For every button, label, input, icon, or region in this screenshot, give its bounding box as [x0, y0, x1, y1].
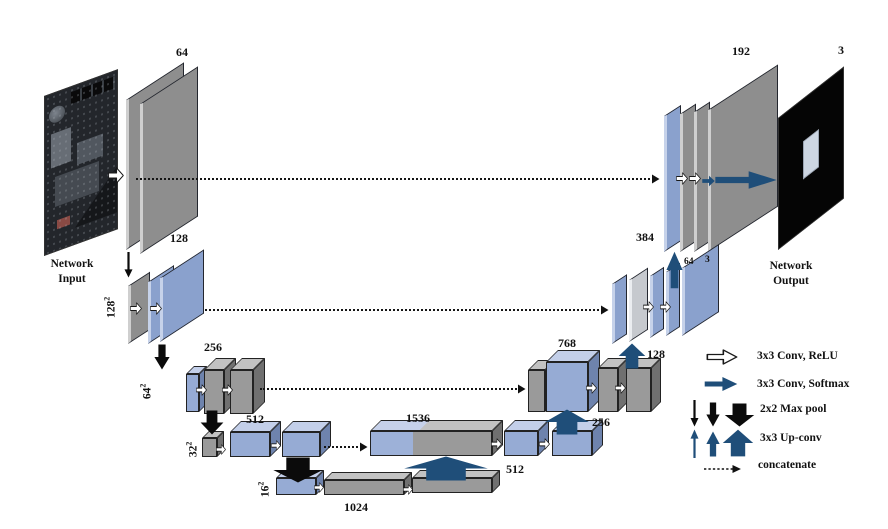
- legend-maxpool-thin-icon: [690, 400, 699, 427]
- channels-label-enc2: 128: [170, 231, 188, 246]
- maxpool-arrow-icon: [124, 252, 133, 278]
- concat-box-dec3: [546, 362, 588, 412]
- conv-box-enc4-a: [230, 432, 270, 457]
- concat-box-dec4: [370, 431, 492, 456]
- conv-box-enc4-b: [282, 432, 320, 457]
- conv-box-enc3-b: [230, 370, 253, 414]
- network-input-caption: Network Input: [32, 257, 112, 287]
- conv-box-enc4-in: [202, 438, 217, 457]
- channels-label-dec3-up: 128: [647, 347, 665, 362]
- size-label-16sq: 162: [257, 471, 272, 507]
- skip-arrowhead-icon: [601, 305, 609, 315]
- legend-upconv-thin-icon: [690, 429, 699, 458]
- skip-box-dec3: [528, 370, 545, 412]
- upconv-arrow-icon: [618, 343, 646, 369]
- conv-relu-arrow-icon: [130, 302, 142, 315]
- upconv-arrow-icon: [402, 456, 490, 481]
- size-label-128sq: 1282: [103, 289, 118, 325]
- conv-box-dec4-a: [504, 431, 538, 456]
- channels-label-dec3-concat: 768: [558, 336, 576, 351]
- conv-relu-arrow-icon: [491, 438, 502, 450]
- channels-label-output: 3: [838, 43, 844, 58]
- channels-label-dec4-conv: 512: [506, 462, 524, 477]
- channels-label-dec1: 192: [732, 44, 750, 59]
- conv-relu-arrow-icon: [150, 302, 162, 315]
- conv-relu-arrow-icon: [403, 484, 413, 495]
- conv-relu-arrow-icon: [108, 167, 124, 184]
- legend-label-concatenate: concatenate: [758, 459, 816, 471]
- skip-connection-line-l2: [205, 309, 603, 311]
- skip-connection-line-l3: [260, 388, 520, 390]
- feature-map-sheet-dec2-a: [612, 274, 627, 344]
- maxpool-arrow-icon: [154, 344, 170, 370]
- legend-maxpool-medium-icon: [706, 402, 720, 427]
- legend-label-conv-softmax: 3x3 Conv, Softmax: [757, 378, 849, 390]
- feature-map-sheet-enc2-c: [160, 249, 204, 342]
- channels-label-dec2-concat: 384: [636, 230, 654, 245]
- conv-relu-arrow-icon: [314, 482, 324, 493]
- size-label-32sq: 322: [185, 431, 200, 467]
- conv-relu-arrow-icon: [643, 301, 654, 313]
- channels-label-enc1: 64: [176, 45, 188, 60]
- legend-label-conv-relu: 3x3 Conv, ReLU: [757, 350, 838, 362]
- channels-label-dec4-concat: 1536: [406, 411, 430, 426]
- conv-relu-arrow-icon: [539, 438, 550, 450]
- maxpool-arrow-icon: [272, 457, 324, 483]
- conv-box-dec3-b: [626, 368, 651, 412]
- upconv-arrow-icon: [666, 251, 683, 289]
- size-label-64sq: 642: [139, 373, 154, 409]
- conv-box-enc3-a: [204, 370, 224, 414]
- conv-relu-arrow-icon: [689, 172, 701, 185]
- skip-connection-line-l4: [324, 446, 362, 448]
- upconv-arrow-icon: [544, 409, 590, 435]
- unet-architecture-diagram: 64 128 256 512 1024 1536 512 256 768 128…: [0, 0, 888, 529]
- conv-relu-arrow-icon: [222, 384, 233, 396]
- legend-maxpool-large-icon: [724, 403, 755, 427]
- channels-label-enc4: 512: [246, 412, 264, 427]
- channels-label-dec4-up: 256: [592, 415, 610, 430]
- conv-relu-arrow-icon: [660, 301, 671, 313]
- conv-relu-arrow-icon: [615, 382, 626, 394]
- channels-label-bottleneck: 1024: [344, 500, 368, 515]
- legend-conv-softmax-arrow-icon: [704, 376, 738, 392]
- legend-conv-relu-arrow-icon: [706, 349, 738, 365]
- conv-relu-arrow-icon: [196, 384, 207, 396]
- network-output-caption: Network Output: [748, 259, 834, 289]
- conv-relu-arrow-icon: [676, 172, 688, 185]
- network-output-image: [778, 66, 844, 250]
- skip-connection-line-l1: [136, 178, 654, 180]
- legend-label-upconv: 3x3 Up-conv: [760, 432, 822, 444]
- caption-line: Network: [32, 257, 112, 272]
- conv-box-bottleneck-a: [324, 480, 404, 495]
- component-texture: [45, 70, 117, 254]
- channels-label-enc3: 256: [204, 340, 222, 355]
- conv-relu-arrow-icon: [586, 382, 597, 394]
- channels-label-dec2-out: 3: [705, 255, 710, 265]
- conv-softmax-arrow-icon: [714, 170, 778, 190]
- legend-label-maxpool: 2x2 Max pool: [760, 403, 826, 415]
- conv-relu-arrow-icon: [271, 440, 281, 451]
- legend-upconv-large-icon: [722, 429, 754, 457]
- legend-upconv-medium-icon: [706, 431, 720, 457]
- segmentation-blob: [803, 129, 819, 180]
- channels-label-dec2-conv: 64: [684, 257, 694, 267]
- feature-map-sheet-dec1-d: [708, 65, 778, 252]
- network-input-image: [44, 69, 118, 256]
- maxpool-arrow-icon: [200, 410, 224, 435]
- caption-line: Output: [748, 274, 834, 289]
- skip-arrowhead-icon: [518, 384, 526, 394]
- skip-arrowhead-icon: [360, 442, 368, 452]
- conv-relu-arrow-icon: [216, 444, 226, 455]
- skip-arrowhead-icon: [652, 174, 660, 184]
- caption-line: Network: [748, 259, 834, 274]
- caption-line: Input: [32, 272, 112, 287]
- legend-concatenate-arrow-icon: [704, 464, 742, 474]
